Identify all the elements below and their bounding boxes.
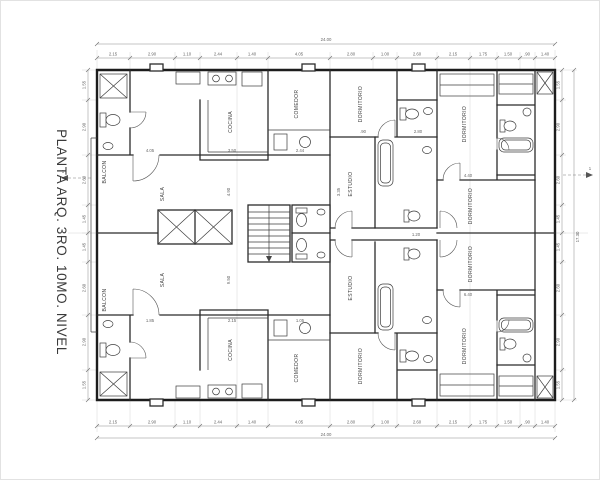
dim-label: 1.50 [504, 52, 513, 57]
toilet-icon [400, 350, 419, 362]
dimension-lines: 24.00 24.00 17.30 2.15 2.90 1.10 2.44 1.… [82, 37, 581, 440]
sink-icon [103, 321, 113, 328]
core [158, 205, 330, 262]
room-label-comedor: COMEDOR [294, 90, 300, 119]
sink-icon [424, 108, 433, 115]
dim-label: 1.10 [183, 420, 192, 425]
toilet-icon [100, 343, 120, 357]
round-sink-icon [300, 323, 311, 334]
stove-icon [208, 385, 236, 398]
dim-label: 2.44 [214, 420, 223, 425]
room-label-dormitorio: DORMITORIO [468, 188, 474, 224]
dim-label: 2.60 [82, 175, 87, 184]
toilet-icon [400, 108, 419, 120]
stove-icon [208, 72, 236, 85]
dim-label: 2.60 [82, 283, 87, 292]
dim-label: 1.40 [541, 52, 550, 57]
room-label-sala: SALA [160, 273, 166, 288]
closet-icon [440, 374, 494, 396]
dim-label: 2.15 [449, 52, 458, 57]
dim-label: 9.50 [226, 275, 231, 284]
dim-label: 2.15 [228, 318, 237, 323]
sink-icon [523, 108, 531, 116]
room-label-dormitorio: DORMITORIO [462, 106, 468, 142]
sink-icon [424, 356, 433, 363]
dim-label: 4.40 [464, 173, 473, 178]
bathtub-icon [378, 284, 393, 330]
dim-total-top: 24.00 [321, 37, 332, 42]
dim-label: 1.00 [381, 420, 390, 425]
dim-label: 2.90 [556, 122, 561, 131]
toilet-icon [296, 208, 307, 227]
dim-label: 1.75 [479, 420, 488, 425]
toilet-icon [296, 239, 307, 260]
fridge-icon [242, 72, 262, 86]
dim-label: 2.60 [556, 175, 561, 184]
dim-label: 2.90 [148, 52, 157, 57]
toilet-icon [404, 248, 420, 260]
dim-label: 2.90 [82, 337, 87, 346]
dim-label: 1.45 [556, 242, 561, 251]
dim-label: 1.20 [412, 232, 421, 237]
round-sink-icon [300, 137, 311, 148]
dim-label: 4.90 [226, 187, 231, 196]
dim-label: .90 [524, 420, 531, 425]
room-label-cocina: COCINA [228, 111, 234, 133]
dim-label: 2.80 [414, 129, 423, 134]
room-label-estudio: ESTUDIO [348, 275, 354, 300]
dim-total-bottom: 24.00 [321, 432, 332, 437]
pilaster [302, 64, 315, 71]
dim-label: 1.00 [381, 52, 390, 57]
kitchen-counter [208, 100, 268, 152]
sink-icon [523, 354, 531, 362]
drawing-sheet: 24.00 24.00 17.30 2.15 2.90 1.10 2.44 1.… [0, 0, 600, 480]
dim-label: 1.75 [479, 52, 488, 57]
room-label-dormitorio: DORMITORIO [468, 246, 474, 282]
dim-label: 1.05 [296, 318, 305, 323]
pilaster [412, 399, 425, 406]
dim-label: 2.15 [109, 52, 118, 57]
toilet-icon [100, 113, 120, 127]
dim-label: .90 [524, 52, 531, 57]
closet-icon [440, 74, 494, 96]
sheet-title: PLANTA ARQ. 3RO. 10MO. NIVEL [54, 129, 69, 355]
dim-label: 2.90 [148, 420, 157, 425]
dim-label: 6.40 [464, 292, 473, 297]
dim-label: 2.44 [214, 52, 223, 57]
room-label-dormitorio: DORMITORIO [358, 86, 364, 122]
toilet-icon [500, 120, 516, 132]
dim-label: 1.40 [248, 52, 257, 57]
dim-label: 1.40 [248, 420, 257, 425]
shaft-icon [537, 72, 553, 94]
dim-label: 1.45 [82, 242, 87, 251]
room-label-cocina: COCINA [228, 339, 234, 361]
dim-label: 2.44 [296, 148, 305, 153]
room-label-dormitorio: DORMITORIO [462, 328, 468, 364]
dim-label: 2.15 [449, 420, 458, 425]
dim-label: 1.50 [504, 420, 513, 425]
dim-label: 1.55 [82, 380, 87, 389]
dim-label: 2.60 [413, 420, 422, 425]
shaft-icon [100, 74, 127, 98]
floor-plan-canvas: 24.00 24.00 17.30 2.15 2.90 1.10 2.44 1.… [0, 0, 600, 480]
closet-icon [499, 74, 533, 94]
dim-label: 2.80 [347, 52, 356, 57]
dim-label: 1.45 [82, 214, 87, 223]
dim-label: 1.55 [556, 80, 561, 89]
dim-label: 1.40 [541, 420, 550, 425]
closet-icon [176, 386, 200, 398]
room-label-sala: SALA [160, 187, 166, 202]
dim-label: 1.45 [556, 214, 561, 223]
room-label-dormitorio: DORMITORIO [358, 348, 364, 384]
pilaster [150, 64, 163, 71]
pilaster [150, 399, 163, 406]
dim-label: 2.90 [556, 337, 561, 346]
dim-label: 1.10 [183, 52, 192, 57]
dim-label: 4.05 [146, 148, 155, 153]
dim-label: 1.55 [556, 380, 561, 389]
dim-total-right: 17.30 [575, 231, 580, 242]
dim-label: 3.35 [336, 187, 341, 196]
dim-label: .90 [360, 129, 367, 134]
dim-label: 2.90 [82, 122, 87, 131]
sink-icon [103, 143, 113, 150]
closet-icon [499, 376, 533, 396]
section-marker-label: 1 [589, 166, 592, 171]
basin-icon [274, 320, 287, 336]
dim-label: 1.85 [146, 318, 155, 323]
pilaster [302, 399, 315, 406]
section-marker-right: 1 [563, 166, 593, 178]
kitchen-counter [208, 318, 268, 370]
pilaster [412, 64, 425, 71]
closet-icon [176, 72, 200, 84]
room-label-balcon: BALCON [102, 161, 108, 184]
dim-label: 2.80 [347, 420, 356, 425]
sink-icon [423, 147, 432, 154]
dim-label: 2.15 [109, 420, 118, 425]
dim-label: 1.55 [82, 80, 87, 89]
toilet-icon [500, 338, 516, 350]
dim-label: 2.60 [556, 283, 561, 292]
shaft-icon [537, 376, 553, 398]
shaft-icon [100, 372, 127, 396]
dim-label: 2.60 [413, 52, 422, 57]
room-label-balcon: BALCON [102, 289, 108, 312]
basin-icon [274, 134, 287, 150]
dim-label: 4.05 [295, 52, 304, 57]
fridge-icon [242, 384, 262, 398]
toilet-icon [404, 210, 420, 222]
room-label-estudio: ESTUDIO [348, 171, 354, 196]
dim-label: 4.05 [295, 420, 304, 425]
room-label-comedor: COMEDOR [294, 354, 300, 383]
bathtub-icon [378, 140, 393, 186]
sink-icon [423, 317, 432, 324]
